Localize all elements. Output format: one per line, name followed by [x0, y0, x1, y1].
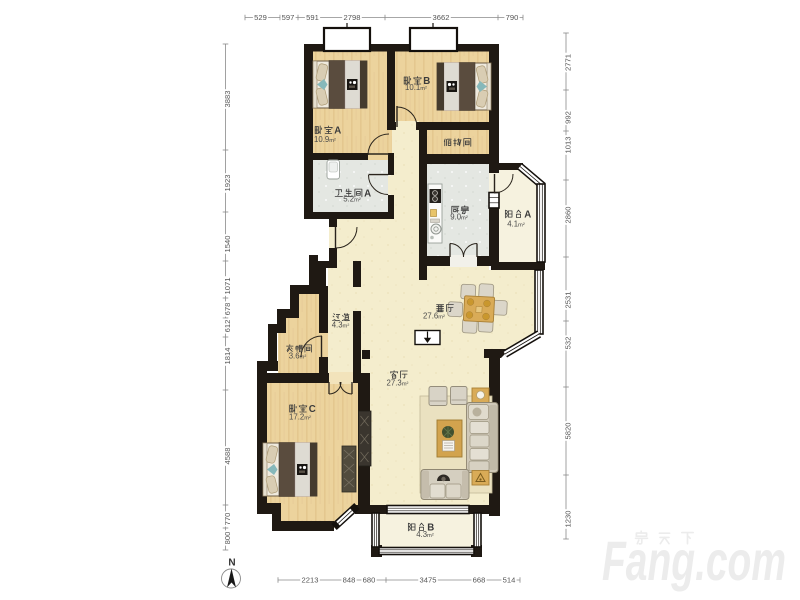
- svg-text:A: A: [364, 188, 371, 199]
- svg-text:A: A: [334, 125, 341, 136]
- svg-text:C: C: [309, 404, 316, 415]
- svg-text:1230: 1230: [564, 511, 573, 528]
- svg-text:790: 790: [506, 13, 519, 22]
- svg-text:Fang.com: Fang.com: [602, 529, 786, 592]
- svg-text:1923: 1923: [223, 175, 232, 192]
- svg-text:992: 992: [564, 111, 573, 124]
- svg-text:597: 597: [282, 13, 295, 22]
- svg-text:N: N: [228, 558, 235, 569]
- svg-text:2531: 2531: [564, 292, 573, 309]
- svg-text:514: 514: [503, 576, 516, 585]
- svg-text:668: 668: [473, 576, 486, 585]
- svg-text:612: 612: [223, 320, 232, 333]
- svg-text:591: 591: [306, 13, 319, 22]
- svg-text:2213: 2213: [302, 576, 319, 585]
- svg-text:529: 529: [254, 13, 267, 22]
- svg-text:3475: 3475: [420, 576, 437, 585]
- svg-text:1814: 1814: [223, 348, 232, 365]
- svg-text:B: B: [427, 522, 434, 533]
- svg-text:800: 800: [223, 532, 232, 545]
- svg-text:1540: 1540: [223, 236, 232, 253]
- svg-text:3883: 3883: [223, 91, 232, 108]
- svg-text:678: 678: [223, 303, 232, 316]
- svg-text:2860: 2860: [564, 207, 573, 224]
- svg-text:2798: 2798: [344, 13, 361, 22]
- svg-text:532: 532: [564, 337, 573, 350]
- svg-text:1013: 1013: [564, 137, 573, 154]
- svg-text:A: A: [524, 209, 531, 220]
- svg-text:770: 770: [223, 513, 232, 526]
- svg-text:4588: 4588: [223, 448, 232, 465]
- svg-text:2771: 2771: [564, 54, 573, 71]
- svg-text:3662: 3662: [433, 13, 450, 22]
- svg-text:848: 848: [343, 576, 356, 585]
- svg-text:680: 680: [363, 576, 376, 585]
- svg-text:5820: 5820: [564, 423, 573, 440]
- svg-text:1071: 1071: [223, 278, 232, 295]
